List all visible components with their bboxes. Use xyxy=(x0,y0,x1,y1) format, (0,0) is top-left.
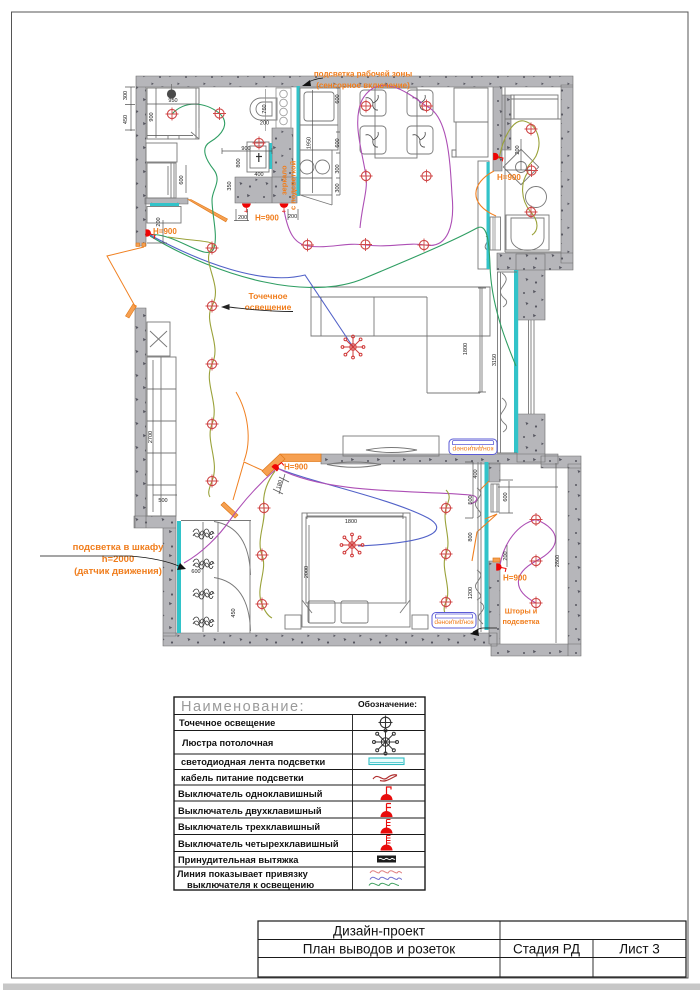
svg-text:подсветка: подсветка xyxy=(503,617,541,626)
svg-text:Точечное: Точечное xyxy=(248,291,287,301)
svg-text:200: 200 xyxy=(515,145,521,154)
svg-text:450: 450 xyxy=(231,608,237,617)
svg-text:зеркало: зеркало xyxy=(280,165,289,195)
svg-text:(датчик движения): (датчик движения) xyxy=(74,566,162,577)
svg-text:350: 350 xyxy=(227,181,233,190)
svg-text:Линия показывает привязку: Линия показывает привязку xyxy=(177,869,309,879)
svg-text:выключателя к освещению: выключателя к освещению xyxy=(187,880,314,890)
svg-text:1950: 1950 xyxy=(307,137,313,149)
svg-text:Дизайн-проект: Дизайн-проект xyxy=(333,924,425,939)
svg-text:Выключатель двухклавишный: Выключатель двухклавишный xyxy=(178,806,322,816)
svg-text:300: 300 xyxy=(123,91,129,100)
svg-text:400: 400 xyxy=(473,469,479,478)
svg-text:Лист 3: Лист 3 xyxy=(619,942,660,957)
svg-text:600: 600 xyxy=(179,175,185,184)
svg-text:500: 500 xyxy=(158,498,167,504)
svg-text:200: 200 xyxy=(260,121,269,127)
svg-text:светодиодная лента подсветки: светодиодная лента подсветки xyxy=(181,757,326,767)
svg-text:200: 200 xyxy=(288,214,297,220)
svg-text:подсветка в шкафу: подсветка в шкафу xyxy=(73,542,164,553)
svg-text:760: 760 xyxy=(262,104,268,113)
svg-text:3150: 3150 xyxy=(492,354,498,366)
svg-text:200: 200 xyxy=(238,215,247,221)
svg-text:Точечное освещение: Точечное освещение xyxy=(179,718,275,728)
svg-text:Наименование:: Наименование: xyxy=(181,699,305,715)
svg-text:800: 800 xyxy=(236,158,242,167)
svg-text:H=900: H=900 xyxy=(255,214,279,223)
svg-text:H=900: H=900 xyxy=(503,574,527,583)
svg-text:H=900: H=900 xyxy=(284,463,308,472)
svg-text:Принудительная вытяжка: Принудительная вытяжка xyxy=(178,855,299,865)
svg-text:1200: 1200 xyxy=(468,587,474,599)
svg-text:600: 600 xyxy=(191,569,200,575)
svg-text:подсветка рабочей зоны: подсветка рабочей зоны xyxy=(314,70,412,79)
svg-text:1800: 1800 xyxy=(345,519,357,525)
svg-text:200: 200 xyxy=(156,217,162,226)
svg-text:200: 200 xyxy=(503,551,509,560)
svg-text:План выводов и розеток: План выводов и розеток xyxy=(303,942,456,957)
svg-text:кондиционер: кондиционер xyxy=(434,619,474,626)
svg-text:950: 950 xyxy=(168,98,177,104)
svg-text:Выключатель трехклавишный: Выключатель трехклавишный xyxy=(178,822,320,832)
svg-text:кондиционер: кондиционер xyxy=(452,445,493,452)
svg-text:Шторы и: Шторы и xyxy=(505,607,537,616)
svg-text:600: 600 xyxy=(503,492,509,501)
svg-text:H=900: H=900 xyxy=(497,173,521,182)
svg-text:Выключатель четырехклавишный: Выключатель четырехклавишный xyxy=(178,839,339,849)
svg-text:450: 450 xyxy=(123,115,129,124)
svg-text:Люстра потолочная: Люстра потолочная xyxy=(182,738,273,748)
svg-text:400: 400 xyxy=(254,172,263,178)
svg-text:Выключатель одноклавишный: Выключатель одноклавишный xyxy=(178,789,323,799)
svg-text:Стадия РД: Стадия РД xyxy=(513,942,580,957)
svg-text:1800: 1800 xyxy=(463,343,469,355)
svg-text:900: 900 xyxy=(149,112,155,121)
svg-text:с подсветкой: с подсветкой xyxy=(289,160,298,210)
svg-text:Обозначение:: Обозначение: xyxy=(358,699,417,709)
svg-text:(сенсорное включение): (сенсорное включение) xyxy=(316,81,410,90)
svg-text:кабель питание подсветки: кабель питание подсветки xyxy=(181,773,304,783)
svg-text:800: 800 xyxy=(468,532,474,541)
svg-text:H=900: H=900 xyxy=(153,227,177,236)
